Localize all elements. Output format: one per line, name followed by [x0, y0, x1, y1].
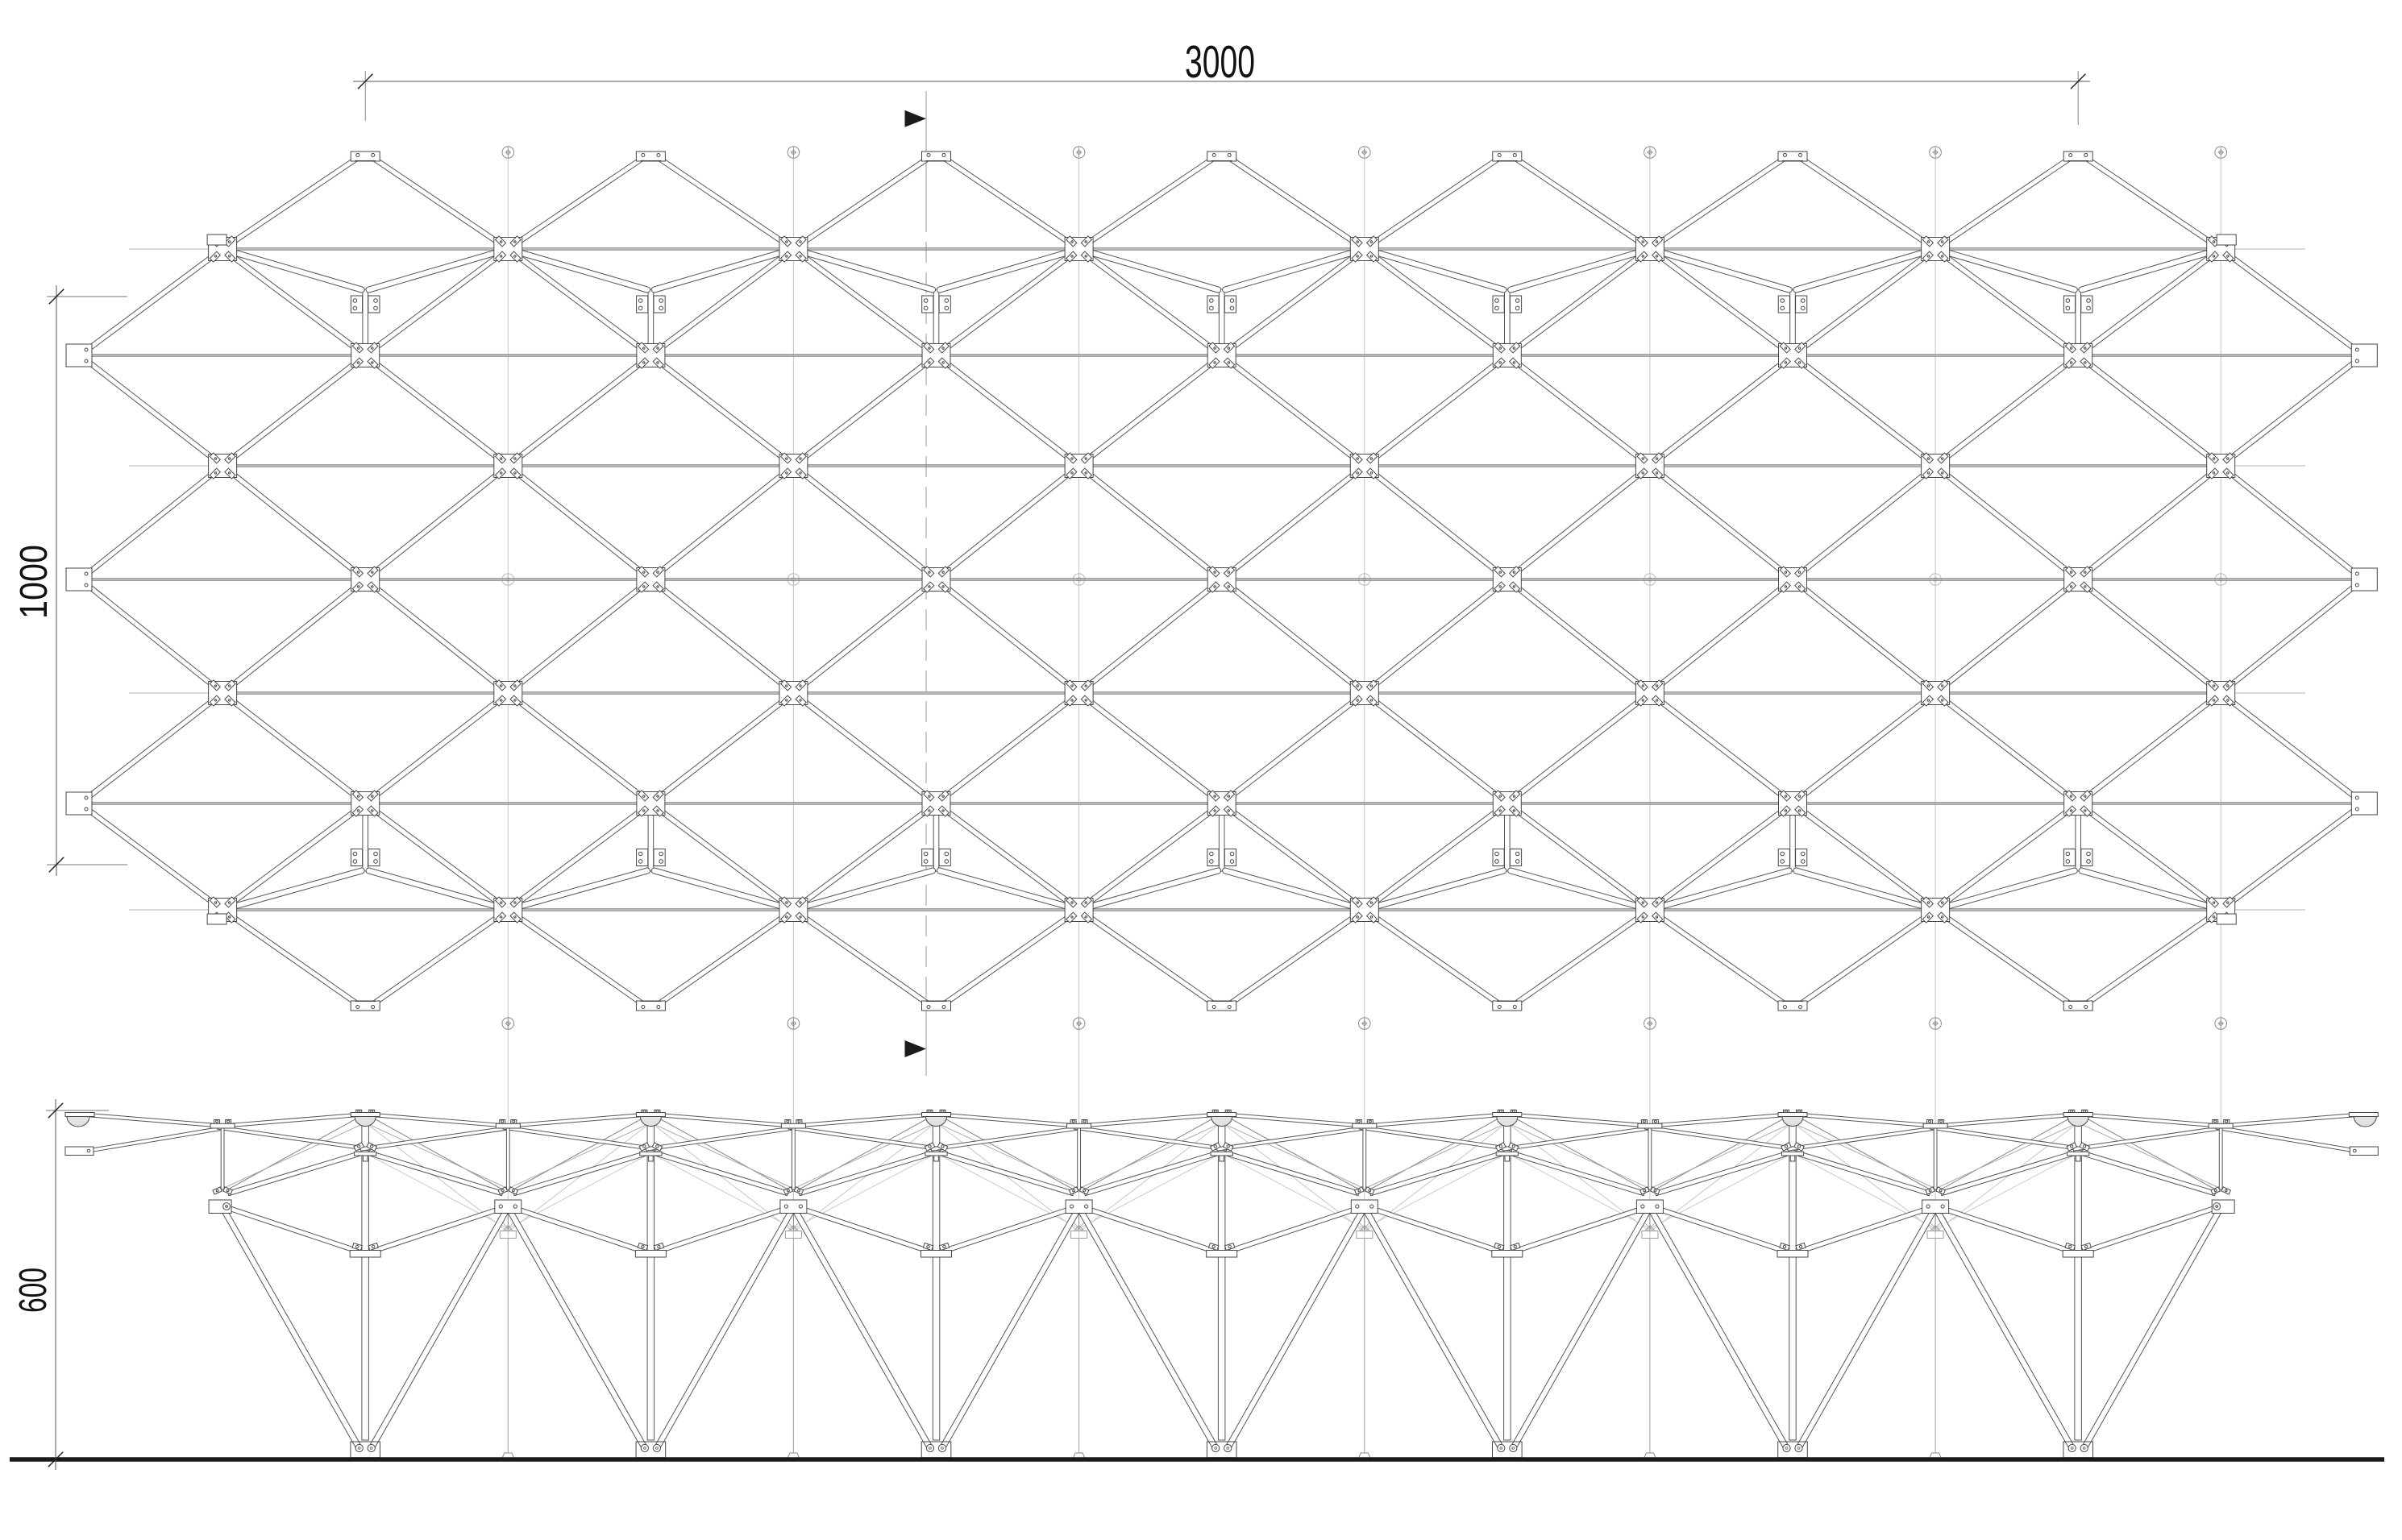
svg-text:3000: 3000: [1185, 36, 1255, 88]
svg-text:600: 600: [12, 1268, 55, 1313]
svg-text:1000: 1000: [13, 545, 56, 619]
